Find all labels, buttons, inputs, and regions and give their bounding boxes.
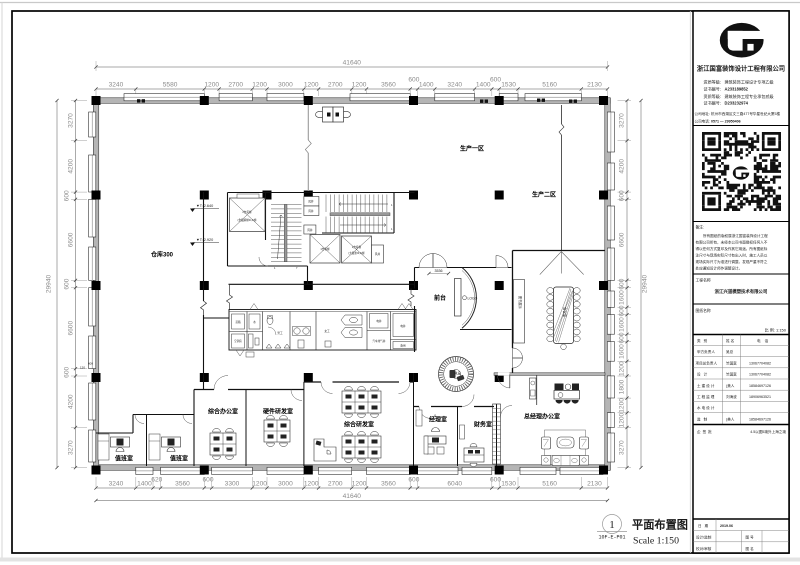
svg-text:1200: 1200 (619, 412, 626, 427)
svg-text:图 名: 图 名 (746, 546, 755, 551)
svg-text:(美人: (美人 (726, 417, 735, 422)
svg-text:综合办公室: 综合办公室 (208, 408, 238, 416)
svg-text:备注:: 备注: (696, 225, 705, 230)
svg-text:2700: 2700 (328, 82, 343, 89)
svg-text:600: 600 (619, 305, 626, 316)
svg-text:男工: 男工 (277, 331, 283, 335)
svg-text:600: 600 (88, 362, 93, 366)
svg-text:浙江兴道模塑技术有限公司: 浙江兴道模塑技术有限公司 (715, 288, 768, 295)
svg-text:2130: 2130 (587, 82, 602, 89)
svg-text:校对/审核: 校对/审核 (696, 546, 712, 551)
svg-text:资质等级:: 资质等级: (703, 93, 721, 99)
svg-text:建筑装饰工程专业承包贰级: 建筑装饰工程专业承包贰级 (725, 93, 774, 99)
svg-text:600: 600 (490, 477, 501, 484)
svg-text:1200: 1200 (304, 82, 319, 89)
svg-text:电井: 电井 (376, 319, 382, 323)
svg-text:仓库300: 仓库300 (150, 251, 174, 259)
svg-text:图书展示: 图书展示 (518, 296, 523, 309)
svg-text:会议室: 会议室 (563, 307, 568, 318)
svg-text:甲方负责人: 甲方负责人 (697, 349, 715, 354)
svg-text:1200: 1200 (352, 481, 367, 488)
svg-text:值班室: 值班室 (115, 455, 133, 463)
svg-text:现场实际尺寸为准进行调整。发现严重不符之: 现场实际尺寸为准进行调整。发现严重不符之 (696, 259, 768, 264)
svg-text:Scale 1:150: Scale 1:150 (633, 536, 679, 547)
svg-text:风井: 风井 (308, 209, 314, 213)
svg-text:设 计: 设 计 (697, 372, 708, 377)
svg-text:女工: 女工 (324, 329, 330, 333)
svg-text:29940: 29940 (642, 275, 649, 294)
svg-text:休息: 休息 (454, 371, 461, 376)
svg-text:3270: 3270 (68, 113, 75, 128)
svg-text:土 建 设 计: 土 建 设 计 (697, 383, 715, 388)
svg-text:3000: 3000 (278, 82, 293, 89)
svg-text:1台客梯: 1台客梯 (320, 247, 330, 251)
svg-text:项目总负责人: 项目总负责人 (696, 360, 718, 365)
svg-text:0571 — 29950406: 0571 — 29950406 (711, 120, 741, 124)
svg-text:3240: 3240 (109, 82, 124, 89)
svg-text:13067704082: 13067704082 (749, 373, 771, 377)
svg-text:600: 600 (64, 366, 71, 377)
svg-text:18906963521: 18906963521 (749, 395, 771, 399)
svg-text:工 程 监 理: 工 程 监 理 (697, 394, 715, 399)
svg-text:比 例: 1:150: 比 例: 1:150 (765, 327, 787, 333)
svg-text:10F-E-P01: 10F-E-P01 (598, 535, 625, 541)
svg-text:刘海波: 刘海波 (726, 394, 737, 399)
svg-text:硬件研发室: 硬件研发室 (263, 408, 293, 416)
svg-text:1200: 1200 (304, 481, 319, 488)
svg-text:工程名称: 工程名称 (696, 278, 711, 283)
svg-text:监 制: 监 制 (697, 417, 708, 422)
svg-text:证书编号:: 证书编号: (703, 85, 721, 91)
svg-text:3240: 3240 (447, 82, 462, 89)
svg-text:类 别: 类 别 (697, 338, 708, 343)
svg-text:5160: 5160 (542, 82, 557, 89)
svg-text:1200: 1200 (352, 82, 367, 89)
svg-text:600: 600 (64, 278, 71, 289)
svg-text:平面布置图: 平面布置图 (632, 518, 688, 532)
svg-text:1600: 1600 (619, 317, 626, 332)
svg-text:生产一区: 生产一区 (460, 145, 484, 153)
svg-text:1200: 1200 (619, 361, 626, 376)
svg-text:所有图纸的版权属浙江国富装饰设计工程: 所有图纸的版权属浙江国富装饰设计工程 (703, 233, 768, 238)
svg-text:41640: 41640 (343, 493, 362, 500)
svg-text:2019.06: 2019.06 (720, 524, 733, 528)
svg-text:(美人: (美人 (726, 383, 735, 388)
svg-text:3240: 3240 (109, 481, 124, 488)
svg-text:A233189852: A233189852 (725, 86, 749, 91)
svg-text:D233232974: D233232974 (725, 101, 749, 106)
svg-text:600: 600 (619, 332, 626, 343)
svg-text:600: 600 (619, 278, 626, 289)
svg-text:经理室: 经理室 (429, 416, 447, 424)
svg-text:▼T: 2.640: ▼T: 2.640 (196, 204, 213, 208)
svg-text:4.5以图5境外上海之境: 4.5以图5境外上海之境 (750, 429, 786, 434)
svg-text:6600: 6600 (68, 232, 75, 247)
svg-text:2700: 2700 (228, 82, 243, 89)
svg-text:600: 600 (64, 190, 71, 201)
svg-text:蒸箱: 蒸箱 (235, 320, 241, 324)
svg-text:总经理办公室: 总经理办公室 (524, 413, 560, 421)
svg-text:1400: 1400 (476, 82, 491, 89)
svg-text:13067704082: 13067704082 (749, 361, 771, 365)
svg-text:3270: 3270 (619, 113, 626, 128)
svg-text:值班室: 值班室 (170, 455, 188, 463)
svg-text:3560: 3560 (381, 82, 396, 89)
svg-text:风井: 风井 (375, 252, 381, 256)
svg-text:1530: 1530 (501, 481, 516, 488)
svg-text:1530: 1530 (501, 82, 516, 89)
svg-text:1200: 1200 (252, 481, 267, 488)
svg-text:公司地址:: 公司地址: (695, 111, 710, 116)
svg-text:2130: 2130 (587, 481, 602, 488)
svg-text:日 期: 日 期 (698, 523, 709, 528)
svg-text:1800: 1800 (619, 379, 626, 394)
svg-text:5580: 5580 (163, 82, 178, 89)
svg-text:电 话: 电 话 (757, 338, 769, 343)
svg-text:处应通知设计师作调整设计。: 处应通知设计师作调整设计。 (696, 266, 743, 271)
svg-text:(金殿解梯0t,4t梯: (金殿解梯0t,4t梯 (238, 218, 257, 222)
svg-text:3560: 3560 (381, 481, 396, 488)
svg-text:600: 600 (490, 77, 501, 84)
svg-text:图 号: 图 号 (746, 535, 755, 540)
svg-text:1400: 1400 (137, 481, 152, 488)
svg-text:得以任何方式复印及作其它用途。所有图纸标: 得以任何方式复印及作其它用途。所有图纸标 (696, 246, 768, 251)
svg-text:▼T: 2.920: ▼T: 2.920 (196, 238, 213, 242)
svg-text:前台: 前台 (434, 294, 446, 302)
svg-text:6600: 6600 (68, 321, 75, 336)
svg-text:杭州市西湖区文三路477号华星世纪大厦5楼: 杭州市西湖区文三路477号华星世纪大厦5楼 (711, 111, 780, 116)
svg-text:3270: 3270 (68, 440, 75, 455)
svg-text:600: 600 (202, 477, 213, 484)
svg-text:4200: 4200 (68, 394, 75, 409)
svg-text:竺国富: 竺国富 (726, 360, 737, 365)
svg-text:综合研发室: 综合研发室 (344, 421, 374, 429)
svg-text:资质等级:: 资质等级: (703, 79, 721, 85)
svg-text:18584697126: 18584697126 (749, 384, 771, 388)
svg-text:1200: 1200 (204, 82, 219, 89)
svg-text:600: 600 (619, 190, 626, 201)
svg-text:1400: 1400 (419, 82, 434, 89)
svg-text:3300: 3300 (225, 481, 240, 488)
svg-text:6040: 6040 (447, 481, 462, 488)
svg-text:有限公司所有，未经本公司书面授权任何人不: 有限公司所有，未经本公司书面授权任何人不 (696, 240, 768, 245)
svg-text:2台客梯: 2台客梯 (352, 245, 362, 249)
svg-text:建筑装饰工程设计专项乙级: 建筑装饰工程设计专项乙级 (725, 79, 774, 85)
svg-text:3560: 3560 (175, 481, 190, 488)
svg-text:竺国富: 竺国富 (726, 372, 737, 377)
svg-text:3000: 3000 (278, 481, 293, 488)
svg-text:(大载重0t,4t梯: (大载重0t,4t梯 (348, 251, 365, 255)
svg-text:600: 600 (408, 477, 419, 484)
svg-text:证书编号:: 证书编号: (703, 100, 721, 106)
svg-text:41640: 41640 (343, 60, 362, 67)
svg-text:水 电 设 计: 水 电 设 计 (697, 405, 715, 410)
svg-text:生产二区: 生产二区 (532, 191, 556, 199)
svg-text:1600: 1600 (619, 290, 626, 305)
svg-text:风井: 风井 (308, 200, 314, 204)
svg-text:2台货梯: 2台货梯 (242, 210, 252, 214)
svg-text:注尺寸与现场实际尺寸有出入时，施工人员以: 注尺寸与现场实际尺寸有出入时，施工人员以 (696, 253, 768, 258)
svg-text:4200: 4200 (619, 159, 626, 174)
svg-text:财务室: 财务室 (473, 421, 492, 429)
svg-text:5160: 5160 (542, 481, 557, 488)
svg-text:4200: 4200 (68, 159, 75, 174)
svg-text:3270: 3270 (619, 440, 626, 455)
svg-text:1200: 1200 (252, 82, 267, 89)
svg-text:6600: 6600 (619, 232, 626, 247)
svg-text:姓 名: 姓 名 (726, 338, 735, 343)
svg-text:18584697126: 18584697126 (749, 418, 771, 422)
svg-text:3536: 3536 (435, 269, 443, 273)
svg-text:1600: 1600 (619, 344, 626, 359)
svg-text:1: 1 (609, 519, 615, 531)
svg-text:设计/监制: 设计/监制 (696, 535, 712, 540)
svg-text:图纸名称: 图纸名称 (696, 308, 711, 313)
svg-text:水: 水 (253, 320, 256, 324)
svg-text:浙江国富装饰设计工程有限公司: 浙江国富装饰设计工程有限公司 (697, 64, 785, 73)
svg-text:公司电话:: 公司电话: (695, 119, 710, 124)
svg-text:备用: 备用 (400, 344, 406, 348)
svg-text:620: 620 (151, 477, 162, 484)
svg-text:风井: 风井 (307, 228, 313, 232)
svg-text:汽车用气井: 汽车用气井 (373, 339, 386, 343)
svg-text:空调房: 空调房 (234, 339, 242, 343)
svg-text:1200: 1200 (619, 398, 626, 413)
svg-text:120: 120 (80, 366, 85, 370)
svg-text:吴总: 吴总 (726, 349, 734, 354)
svg-text:电井: 电井 (400, 324, 406, 328)
svg-text:企 签 批: 企 签 批 (697, 429, 712, 434)
svg-text:2700: 2700 (328, 481, 343, 488)
svg-text:29940: 29940 (46, 275, 53, 294)
